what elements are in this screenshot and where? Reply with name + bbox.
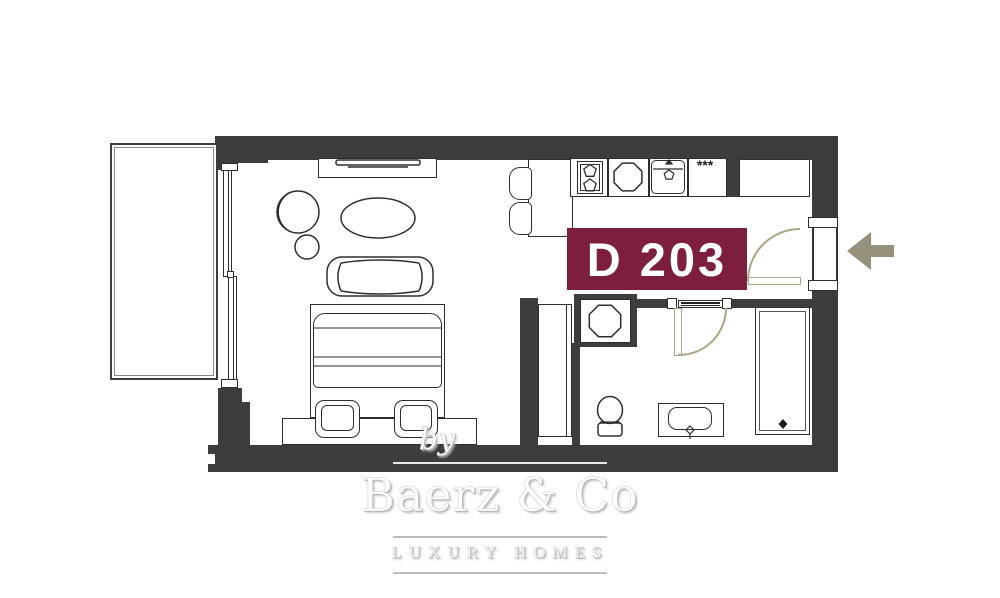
sofa [327, 257, 433, 296]
wall-right-upper [812, 136, 838, 218]
refrigerator-cabinet [739, 159, 810, 197]
wall-bath-inner-vertical [572, 343, 580, 445]
brand-tagline: LUXURY HOMES [360, 543, 640, 563]
bed-duvet [313, 313, 442, 388]
tv-console [318, 158, 437, 178]
counter-divider-3 [687, 159, 689, 196]
bar-stool-1 [509, 167, 532, 200]
wall-kitchen-pillar [727, 136, 739, 197]
bathroom-door-closed-bar [678, 300, 723, 308]
wall-bath-left-vertical [520, 298, 538, 445]
wall-bottom-notch [208, 454, 215, 464]
bathroom-door-arc [678, 308, 726, 355]
sliding-door-bottom-frame [221, 379, 238, 388]
entry-jamb-top [808, 217, 838, 228]
brand-rule-top [393, 462, 607, 464]
entry-opening [812, 228, 838, 280]
bar-stool-2 [509, 202, 532, 235]
balcony [110, 143, 218, 380]
counter-divider-2 [648, 159, 650, 196]
sliding-door-latch [227, 271, 234, 278]
entrance-arrow-icon [847, 232, 894, 270]
vent-symbol: *** [690, 156, 720, 174]
sliding-door-panel-upper [223, 170, 232, 277]
bar-counter [528, 159, 573, 237]
wall-bottom-left-step [242, 402, 250, 446]
coffee-table [341, 198, 415, 238]
balcony-inner-rail [114, 147, 214, 376]
entry-door-leaf [748, 277, 801, 285]
unit-label: D 203 [567, 228, 747, 290]
armchair [277, 191, 319, 233]
shower [755, 307, 810, 435]
brand-rule-bottom [393, 572, 607, 574]
toilet [598, 397, 623, 437]
floor-plan: *** [0, 0, 1000, 598]
brand-name: Baerz & Co [340, 468, 660, 522]
counter-divider-1 [607, 159, 609, 196]
wall-top [215, 136, 838, 160]
cooktop [577, 161, 603, 194]
side-table [295, 235, 319, 259]
wall-bottom-left-block [218, 388, 242, 446]
washing-machine [580, 299, 631, 343]
ottoman-left [315, 400, 360, 438]
entry-door-arc [748, 229, 800, 281]
brand-by: by [400, 422, 474, 457]
wall-top-left-block [215, 136, 268, 163]
bathroom-jamb-right [722, 298, 732, 309]
entry-jamb-bottom [808, 280, 838, 291]
brand-rule-middle [393, 536, 607, 538]
bathroom-door-leaf [674, 308, 682, 356]
square-sink [651, 160, 685, 194]
washbasin-sink [668, 407, 712, 430]
sliding-door-panel-lower [228, 276, 237, 381]
wardrobe [538, 304, 572, 437]
